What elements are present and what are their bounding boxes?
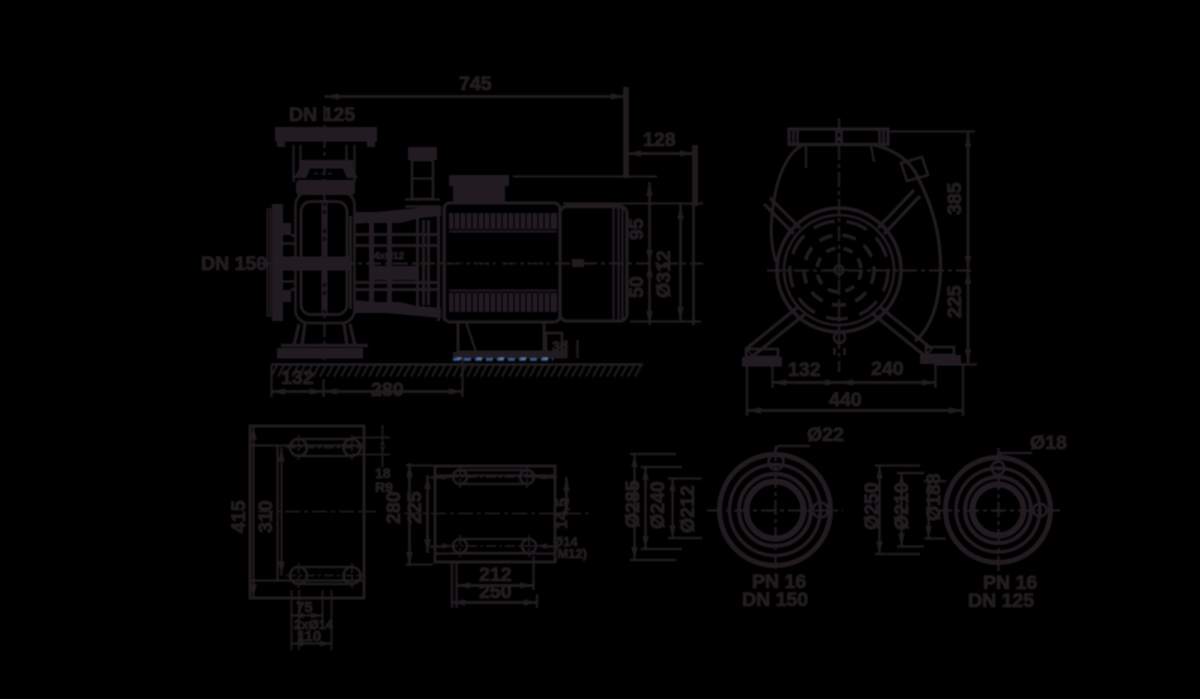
svg-text:132: 132 [281, 367, 314, 389]
svg-text:415: 415 [228, 500, 250, 533]
svg-text:Ø22: Ø22 [807, 424, 844, 446]
svg-text:DN 125: DN 125 [968, 590, 1034, 612]
svg-text:Ø285: Ø285 [622, 480, 644, 528]
svg-text:(M12): (M12) [553, 546, 587, 561]
svg-text:50: 50 [626, 276, 648, 298]
svg-text:Ø18: Ø18 [1030, 432, 1067, 454]
svg-text:DN 150: DN 150 [742, 589, 808, 611]
svg-text:132: 132 [788, 359, 821, 381]
svg-text:280: 280 [383, 491, 405, 524]
svg-text:Ø212: Ø212 [677, 485, 699, 533]
svg-text:225: 225 [944, 285, 966, 318]
svg-text:DN 150: DN 150 [201, 253, 267, 275]
svg-text:225: 225 [404, 491, 426, 524]
svg-text:DN 125: DN 125 [289, 104, 355, 126]
svg-text:385: 385 [944, 182, 966, 215]
svg-text:240: 240 [871, 358, 904, 380]
svg-text:95: 95 [626, 218, 648, 240]
svg-text:280: 280 [371, 379, 404, 401]
svg-text:745: 745 [459, 73, 492, 95]
svg-text:Ø188: Ø188 [923, 473, 945, 521]
svg-text:440: 440 [829, 389, 862, 411]
svg-text:36: 36 [552, 338, 568, 354]
svg-text:Ø312: Ø312 [653, 250, 675, 298]
svg-text:Ø240: Ø240 [647, 481, 669, 529]
svg-text:Ø210: Ø210 [891, 482, 913, 530]
svg-text:310: 310 [255, 500, 277, 533]
svg-text:128: 128 [643, 129, 676, 151]
svg-text:Ø250: Ø250 [861, 482, 883, 530]
svg-text:14,5: 14,5 [554, 498, 571, 529]
svg-text:250: 250 [479, 581, 512, 603]
svg-text:75: 75 [296, 599, 313, 616]
svg-text:110: 110 [297, 628, 321, 645]
